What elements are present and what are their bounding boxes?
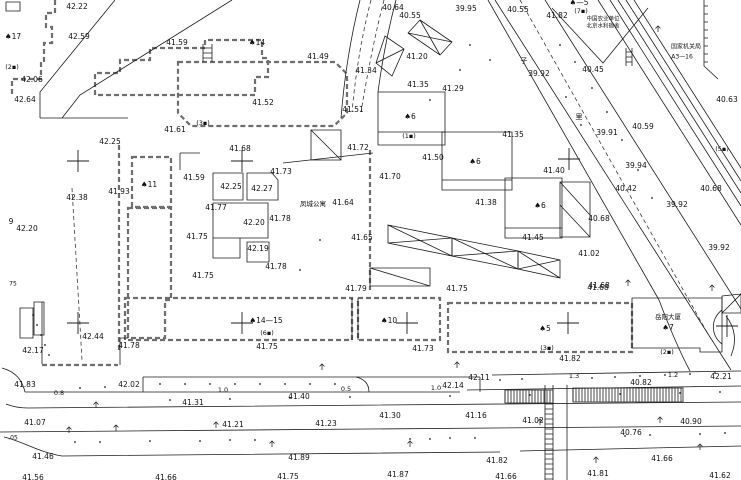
elevation-label: 41.89 [288, 453, 310, 462]
compound-boundary-line [128, 208, 171, 338]
tree-dot [699, 433, 701, 435]
tree-dot [104, 386, 106, 388]
elevation-label: 41.64 [332, 198, 354, 207]
elevation-label: 41.29 [442, 84, 464, 93]
survey-cross [557, 312, 579, 334]
tree-dot [429, 438, 431, 440]
tree-dot [44, 344, 46, 346]
building-number-label: ♠17 [5, 32, 21, 41]
elevation-label: 42.64 [14, 95, 36, 104]
plan-line [634, 0, 741, 168]
elevation-label: 39.92 [528, 69, 550, 78]
elevation-label: 42.17 [22, 346, 44, 355]
plan-line [341, 0, 360, 118]
elevation-label: 41.31 [182, 398, 204, 407]
plan-line [704, 6, 708, 62]
tree-dot [489, 59, 491, 61]
tree-symbol [320, 364, 325, 370]
tree-dot [474, 437, 476, 439]
elevation-label: 42.59 [68, 32, 90, 41]
tree-dot [409, 438, 411, 440]
elevation-label: 40.90 [680, 417, 702, 426]
elevation-label: 41.46 [32, 452, 54, 461]
hatch-strip [545, 404, 553, 479]
tree-dot [580, 124, 582, 126]
point-number-label: 9 [9, 217, 14, 226]
elevation-label: 41.93 [108, 187, 130, 196]
compound-boundary-line [358, 298, 440, 340]
plan-line [545, 385, 567, 480]
site-plan-svg: 42.22♠1742.59(2▪)42.0642.6442.2542.38942… [0, 0, 741, 480]
elevation-label: 41.83 [14, 380, 36, 389]
tree-dot [229, 439, 231, 441]
tree-dot [159, 383, 161, 385]
tree-dot [429, 99, 431, 101]
building-number-label: ♠11 [141, 180, 157, 189]
plan-line [704, 0, 718, 79]
elevation-label: 41.02 [522, 416, 544, 425]
elevation-label: 39.92 [666, 200, 688, 209]
building-number-label: ♠14 [249, 38, 265, 47]
tree-dot [614, 376, 616, 378]
tree-dot [521, 378, 523, 380]
survey-cross [231, 150, 253, 172]
tree-dot [649, 434, 651, 436]
tree-dot [349, 396, 351, 398]
tree-symbol [626, 280, 631, 286]
elevation-label: 41.35 [407, 80, 429, 89]
elevation-label: 41.07 [24, 418, 46, 427]
tree-dot [664, 374, 666, 376]
tree-dot [639, 375, 641, 377]
tree-dot [334, 383, 336, 385]
plan-line [626, 0, 741, 181]
tree-symbol [67, 427, 72, 433]
elevation-label: 41.59 [183, 173, 205, 182]
elevation-label: 41.50 [422, 153, 444, 162]
width-label: 1.0 [218, 386, 228, 394]
tree-dot [199, 440, 201, 442]
elevation-label: 41.56 [22, 473, 44, 480]
tree-dot [99, 441, 101, 443]
plan-line [713, 310, 722, 344]
tree-dot [621, 139, 623, 141]
elevation-label: 42.14 [442, 381, 464, 390]
tree-symbol [658, 417, 663, 423]
plan-line [626, 48, 632, 66]
tree-dot [234, 383, 236, 385]
building-number-label: ♠6 [534, 201, 546, 210]
tree-dot [449, 437, 451, 439]
tree-dot [319, 239, 321, 241]
elevation-label: 40.68 [588, 214, 610, 223]
elevation-label: 41.02 [578, 249, 600, 258]
plan-line [492, 371, 741, 375]
tree-dot [449, 395, 451, 397]
tree-dot [309, 383, 311, 385]
elevation-label: 40.42 [615, 184, 637, 193]
elevation-label: 42.19 [247, 244, 269, 253]
width-label: 0.8 [54, 389, 64, 397]
plan-line [659, 300, 690, 371]
floor-count-label: (2▪) [5, 63, 19, 71]
elevation-label: 41.66 [651, 454, 673, 463]
tree-symbol [710, 285, 715, 291]
elevation-label: 41.62 [709, 471, 731, 480]
tree-dot [724, 432, 726, 434]
office-code-label: A3—16 [671, 54, 693, 61]
tree-dot [719, 391, 721, 393]
elevation-label: 41.78 [118, 341, 140, 350]
elevation-label: 42.21 [710, 372, 732, 381]
tree-symbol [114, 425, 119, 431]
elevation-label: 42.20 [243, 218, 265, 227]
elevation-label: 41.45 [522, 233, 544, 242]
survey-cross [716, 315, 738, 337]
elevation-label: 39.92 [708, 243, 730, 252]
plan-line [545, 0, 741, 309]
hatch-strip [505, 390, 553, 403]
estate-name-label: 凤城公寓 [300, 199, 326, 208]
survey-cross [67, 150, 89, 172]
tree-symbol [455, 362, 460, 368]
elevation-label: 42.27 [251, 184, 273, 193]
tree-dot [259, 383, 261, 385]
elevation-label: 40.59 [632, 122, 654, 131]
elevation-label: 40.55 [399, 11, 421, 20]
dashed-path-line [352, 0, 371, 112]
elevation-label: 41.16 [465, 411, 487, 420]
elevation-label: .05 [8, 435, 18, 442]
elevation-label: 41.75 [446, 284, 468, 293]
tree-symbol [408, 441, 413, 447]
building-number-label: ♠5 [539, 324, 551, 333]
elevation-label: 42.44 [82, 332, 104, 341]
elevation-label: 41.73 [412, 344, 434, 353]
tree-dot [689, 373, 691, 375]
street-name-char: 里 [576, 113, 583, 121]
tree-dot [32, 314, 34, 316]
tree-dot [229, 398, 231, 400]
tree-dot [299, 269, 301, 271]
plan-line [213, 238, 240, 258]
elevation-label: 41.79 [345, 284, 367, 293]
point-number-label: 75 [9, 281, 17, 288]
building-number-label: ♠14—15 [249, 316, 283, 325]
elevation-label: 40.82 [630, 378, 652, 387]
tree-dot [499, 379, 501, 381]
elevation-label: 40.63 [716, 95, 738, 104]
elevation-label: 41.82 [559, 354, 581, 363]
tree-dot [565, 96, 567, 98]
elevation-label: 41.65 [351, 233, 373, 242]
plan-line [40, 0, 115, 118]
width-label: 1.0 [431, 384, 441, 392]
elevation-label: 41.30 [379, 411, 401, 420]
plan-line [495, 0, 731, 370]
plan-line [518, 251, 560, 278]
plan-line [376, 36, 404, 76]
elevation-label: 41.34 [355, 66, 377, 75]
tree-dot [74, 441, 76, 443]
plan-line [388, 225, 452, 256]
elevation-label: 42.20 [16, 224, 38, 233]
tree-dot [169, 399, 171, 401]
plan-line [20, 302, 44, 338]
elevation-label: 41.73 [270, 167, 292, 176]
plan-line [452, 238, 518, 269]
elevation-label: 41.66 [155, 473, 177, 480]
elevation-label: 40.76 [620, 428, 642, 437]
tree-dot [254, 439, 256, 441]
tree-dot [679, 392, 681, 394]
elevation-label: 42.38 [66, 193, 88, 202]
plan-line [573, 388, 683, 402]
floor-count-label: (6▪) [260, 329, 274, 337]
building-number-label: ♠—5 [570, 0, 589, 7]
tree-dot [459, 69, 461, 71]
elevation-label: 42.02 [118, 380, 140, 389]
elevation-label: 42.25 [220, 182, 242, 191]
elevation-label: 42.25 [99, 137, 121, 146]
compound-boundary-line [125, 298, 352, 340]
tree-dot [48, 354, 50, 356]
tree-dot [619, 393, 621, 395]
elevation-label: 41.82 [546, 11, 568, 20]
elevation-label: 41.66 [495, 472, 517, 480]
tree-dot [79, 387, 81, 389]
elevation-label: 41.20 [406, 52, 428, 61]
elevation-label: 41.23 [315, 419, 337, 428]
survey-cross [67, 312, 89, 334]
office-name-label-line1: 中国农业单位 [586, 15, 620, 23]
width-label: 1.2 [668, 371, 678, 379]
elevation-label: 41.75 [192, 271, 214, 280]
floor-count-label: (2▪) [660, 348, 674, 356]
elevation-label: 41.21 [222, 420, 244, 429]
elevation-label: 41.40 [543, 166, 565, 175]
site-plan: 42.22♠1742.59(2▪)42.0642.6442.2542.38942… [0, 0, 741, 480]
elevation-label: 40.55 [507, 5, 529, 14]
plan-line [408, 20, 452, 55]
plan-line [6, 402, 741, 408]
plan-line [203, 44, 212, 62]
elevation-label: 39.94 [625, 161, 647, 170]
tree-dot [591, 87, 593, 89]
tree-symbol [270, 441, 275, 447]
elevation-label: 41.75 [277, 472, 299, 480]
floor-count-label: (3▪) [196, 119, 210, 127]
floor-count-label: (3▪) [540, 344, 554, 352]
hatch-strip [573, 388, 681, 402]
building-number-label: ♠10 [381, 316, 397, 325]
plan-line [560, 182, 590, 237]
elevation-label: 39.91 [596, 128, 618, 137]
street-name-char: 子 [521, 57, 528, 65]
elevation-label: 41.40 [288, 392, 310, 401]
tree-symbol [656, 26, 661, 32]
tree-dot [651, 197, 653, 199]
elevation-label: 41.81 [587, 469, 609, 478]
elevation-label: 40.68 [700, 184, 722, 193]
tree-symbol [594, 457, 599, 463]
width-label: 1.3 [569, 372, 579, 380]
plan-line [62, 0, 232, 118]
elevation-label: 41.68 [587, 283, 609, 292]
elevation-label: 41.52 [252, 98, 274, 107]
floor-count-label: (5▪) [715, 145, 729, 153]
elevation-label: 41.59 [166, 38, 188, 47]
elevation-label: 41.75 [256, 342, 278, 351]
elevation-label: 41.38 [475, 198, 497, 207]
elevation-label: 41.61 [164, 125, 186, 134]
plan-line [722, 294, 741, 313]
tree-symbol [214, 422, 219, 428]
elevation-label: 41.51 [342, 105, 364, 114]
tree-dot [40, 334, 42, 336]
office-name-label-line2: 北京水利宿舍 [586, 22, 620, 30]
tree-dot [559, 44, 561, 46]
plan-line [356, 377, 369, 392]
building-number-label: ♠6 [404, 112, 416, 121]
tree-dot [591, 377, 593, 379]
tree-dot [606, 111, 608, 113]
tree-dot [574, 61, 576, 63]
tree-dot [36, 324, 38, 326]
elevation-label: 41.49 [307, 52, 329, 61]
elevation-label: 40.45 [582, 65, 604, 74]
elevation-label: 41.78 [265, 262, 287, 271]
plan-line [180, 153, 200, 170]
elevation-label: 41.70 [379, 172, 401, 181]
floor-count-label: (7▪) [574, 7, 588, 15]
width-label: 0.5 [341, 385, 351, 393]
tree-dot [149, 440, 151, 442]
elevation-label: 42.22 [66, 2, 88, 11]
building-number-label: ♠6 [469, 157, 481, 166]
elevation-label: 41.68 [229, 144, 251, 153]
survey-cross [396, 312, 418, 334]
elevation-label: 41.78 [269, 214, 291, 223]
tree-dot [184, 383, 186, 385]
tree-dot [529, 394, 531, 396]
tree-dot [284, 383, 286, 385]
elevation-label: 42.11 [468, 373, 490, 382]
plan-line [311, 130, 341, 160]
plan-line [370, 268, 430, 286]
plan-line [6, 2, 20, 11]
building-number-label: ♠7 [662, 323, 674, 332]
elevation-label: 41.35 [502, 130, 524, 139]
tree-dot [469, 44, 471, 46]
building-name-label: 岳阳大厦 [655, 312, 682, 321]
elevation-label: 41.72 [347, 143, 369, 152]
elevation-label: 41.87 [387, 470, 409, 479]
compound-boundary-line [95, 40, 268, 95]
elevation-label: 41.82 [486, 456, 508, 465]
tree-dot [209, 383, 211, 385]
elevation-label: 41.77 [205, 203, 227, 212]
elevation-label: 41.75 [186, 232, 208, 241]
dashed-path-line [72, 188, 82, 360]
office-name-label: 国家机关局 [671, 43, 701, 51]
dashed-path-line [361, 0, 384, 112]
plan-line [4, 437, 500, 456]
elevation-label: 42.06 [21, 75, 43, 84]
elevation-label: 39.95 [455, 4, 477, 13]
floor-count-label: (1▪) [402, 132, 416, 140]
plan-line [283, 153, 373, 163]
